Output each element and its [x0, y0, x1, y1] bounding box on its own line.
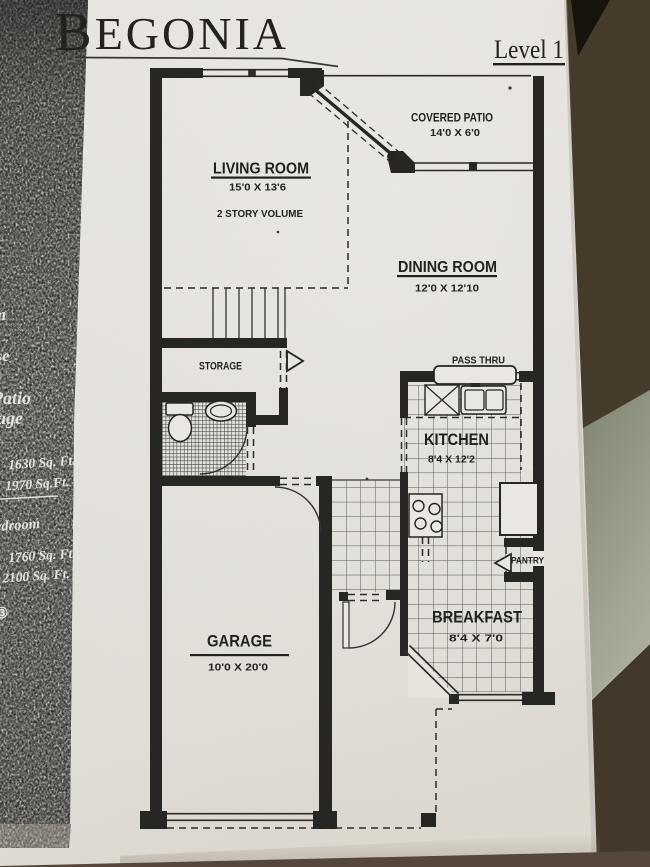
svg-text:BREAKFAST: BREAKFAST — [432, 609, 522, 627]
svg-text:8'4 X 12'2: 8'4 X 12'2 — [428, 455, 475, 466]
svg-text:KITCHEN: KITCHEN — [424, 431, 489, 449]
svg-text:STORAGE: STORAGE — [199, 361, 242, 373]
svg-text:rage: rage — [0, 408, 23, 428]
svg-text:m: m — [0, 305, 6, 324]
svg-text:15'0 X 13'6: 15'0 X 13'6 — [229, 182, 286, 194]
svg-text:GARAGE: GARAGE — [207, 632, 272, 651]
svg-text:12'0 X 12'10: 12'0 X 12'10 — [415, 283, 479, 295]
svg-text:Patio: Patio — [0, 388, 31, 408]
svg-text:DINING ROOM: DINING ROOM — [398, 259, 497, 276]
svg-text:14'0 X 6'0: 14'0 X 6'0 — [430, 127, 480, 139]
svg-text:LIVING ROOM: LIVING ROOM — [213, 161, 309, 178]
svg-text:2 STORY VOLUME: 2 STORY VOLUME — [217, 208, 303, 220]
svg-text:Level 1: Level 1 — [494, 35, 564, 64]
svg-text:se: se — [0, 348, 9, 365]
svg-text:PANTRY: PANTRY — [511, 556, 545, 567]
svg-text:COVERED PATIO: COVERED PATIO — [411, 113, 493, 125]
svg-text:10'0 X 20'0: 10'0 X 20'0 — [208, 662, 268, 674]
svg-text:BEGONIA: BEGONIA — [55, 1, 289, 62]
svg-text:PASS THRU: PASS THRU — [452, 356, 505, 367]
svg-text:③: ③ — [0, 606, 8, 622]
svg-text:8'4 X 7'0: 8'4 X 7'0 — [449, 633, 503, 645]
